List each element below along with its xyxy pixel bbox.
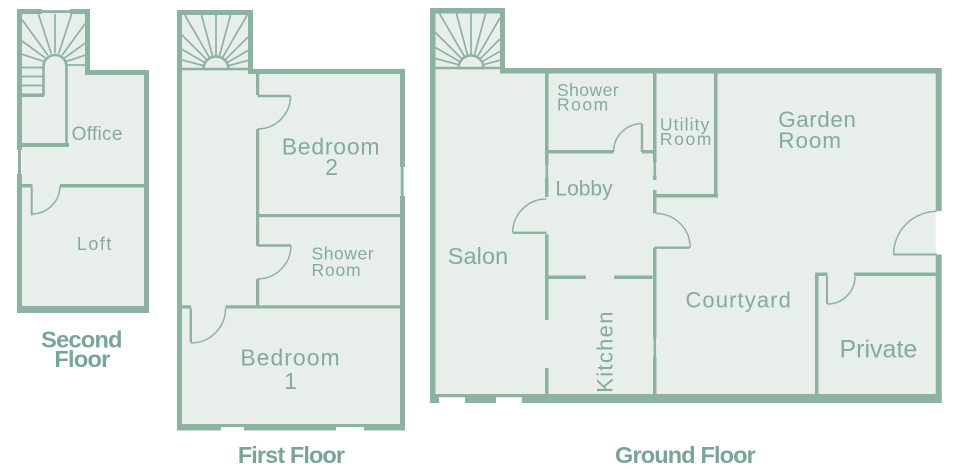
svg-text:Loft: Loft (77, 234, 113, 254)
svg-text:Salon: Salon (448, 243, 509, 269)
svg-text:1: 1 (284, 368, 297, 394)
svg-text:Room: Room (557, 94, 610, 114)
svg-text:Courtyard: Courtyard (685, 288, 792, 313)
svg-text:Room: Room (312, 260, 362, 280)
svg-text:Floor: Floor (54, 346, 110, 372)
svg-text:2: 2 (325, 154, 338, 180)
svg-text:Ground Floor: Ground Floor (615, 442, 756, 468)
svg-text:Bedroom: Bedroom (240, 345, 340, 371)
svg-text:Room: Room (778, 128, 842, 153)
svg-text:First Floor: First Floor (238, 442, 345, 468)
svg-text:Lobby: Lobby (555, 178, 613, 201)
svg-text:Room: Room (660, 129, 713, 149)
svg-text:Office: Office (72, 124, 123, 145)
svg-text:Private: Private (839, 335, 917, 363)
svg-text:Kitchen: Kitchen (593, 310, 618, 392)
